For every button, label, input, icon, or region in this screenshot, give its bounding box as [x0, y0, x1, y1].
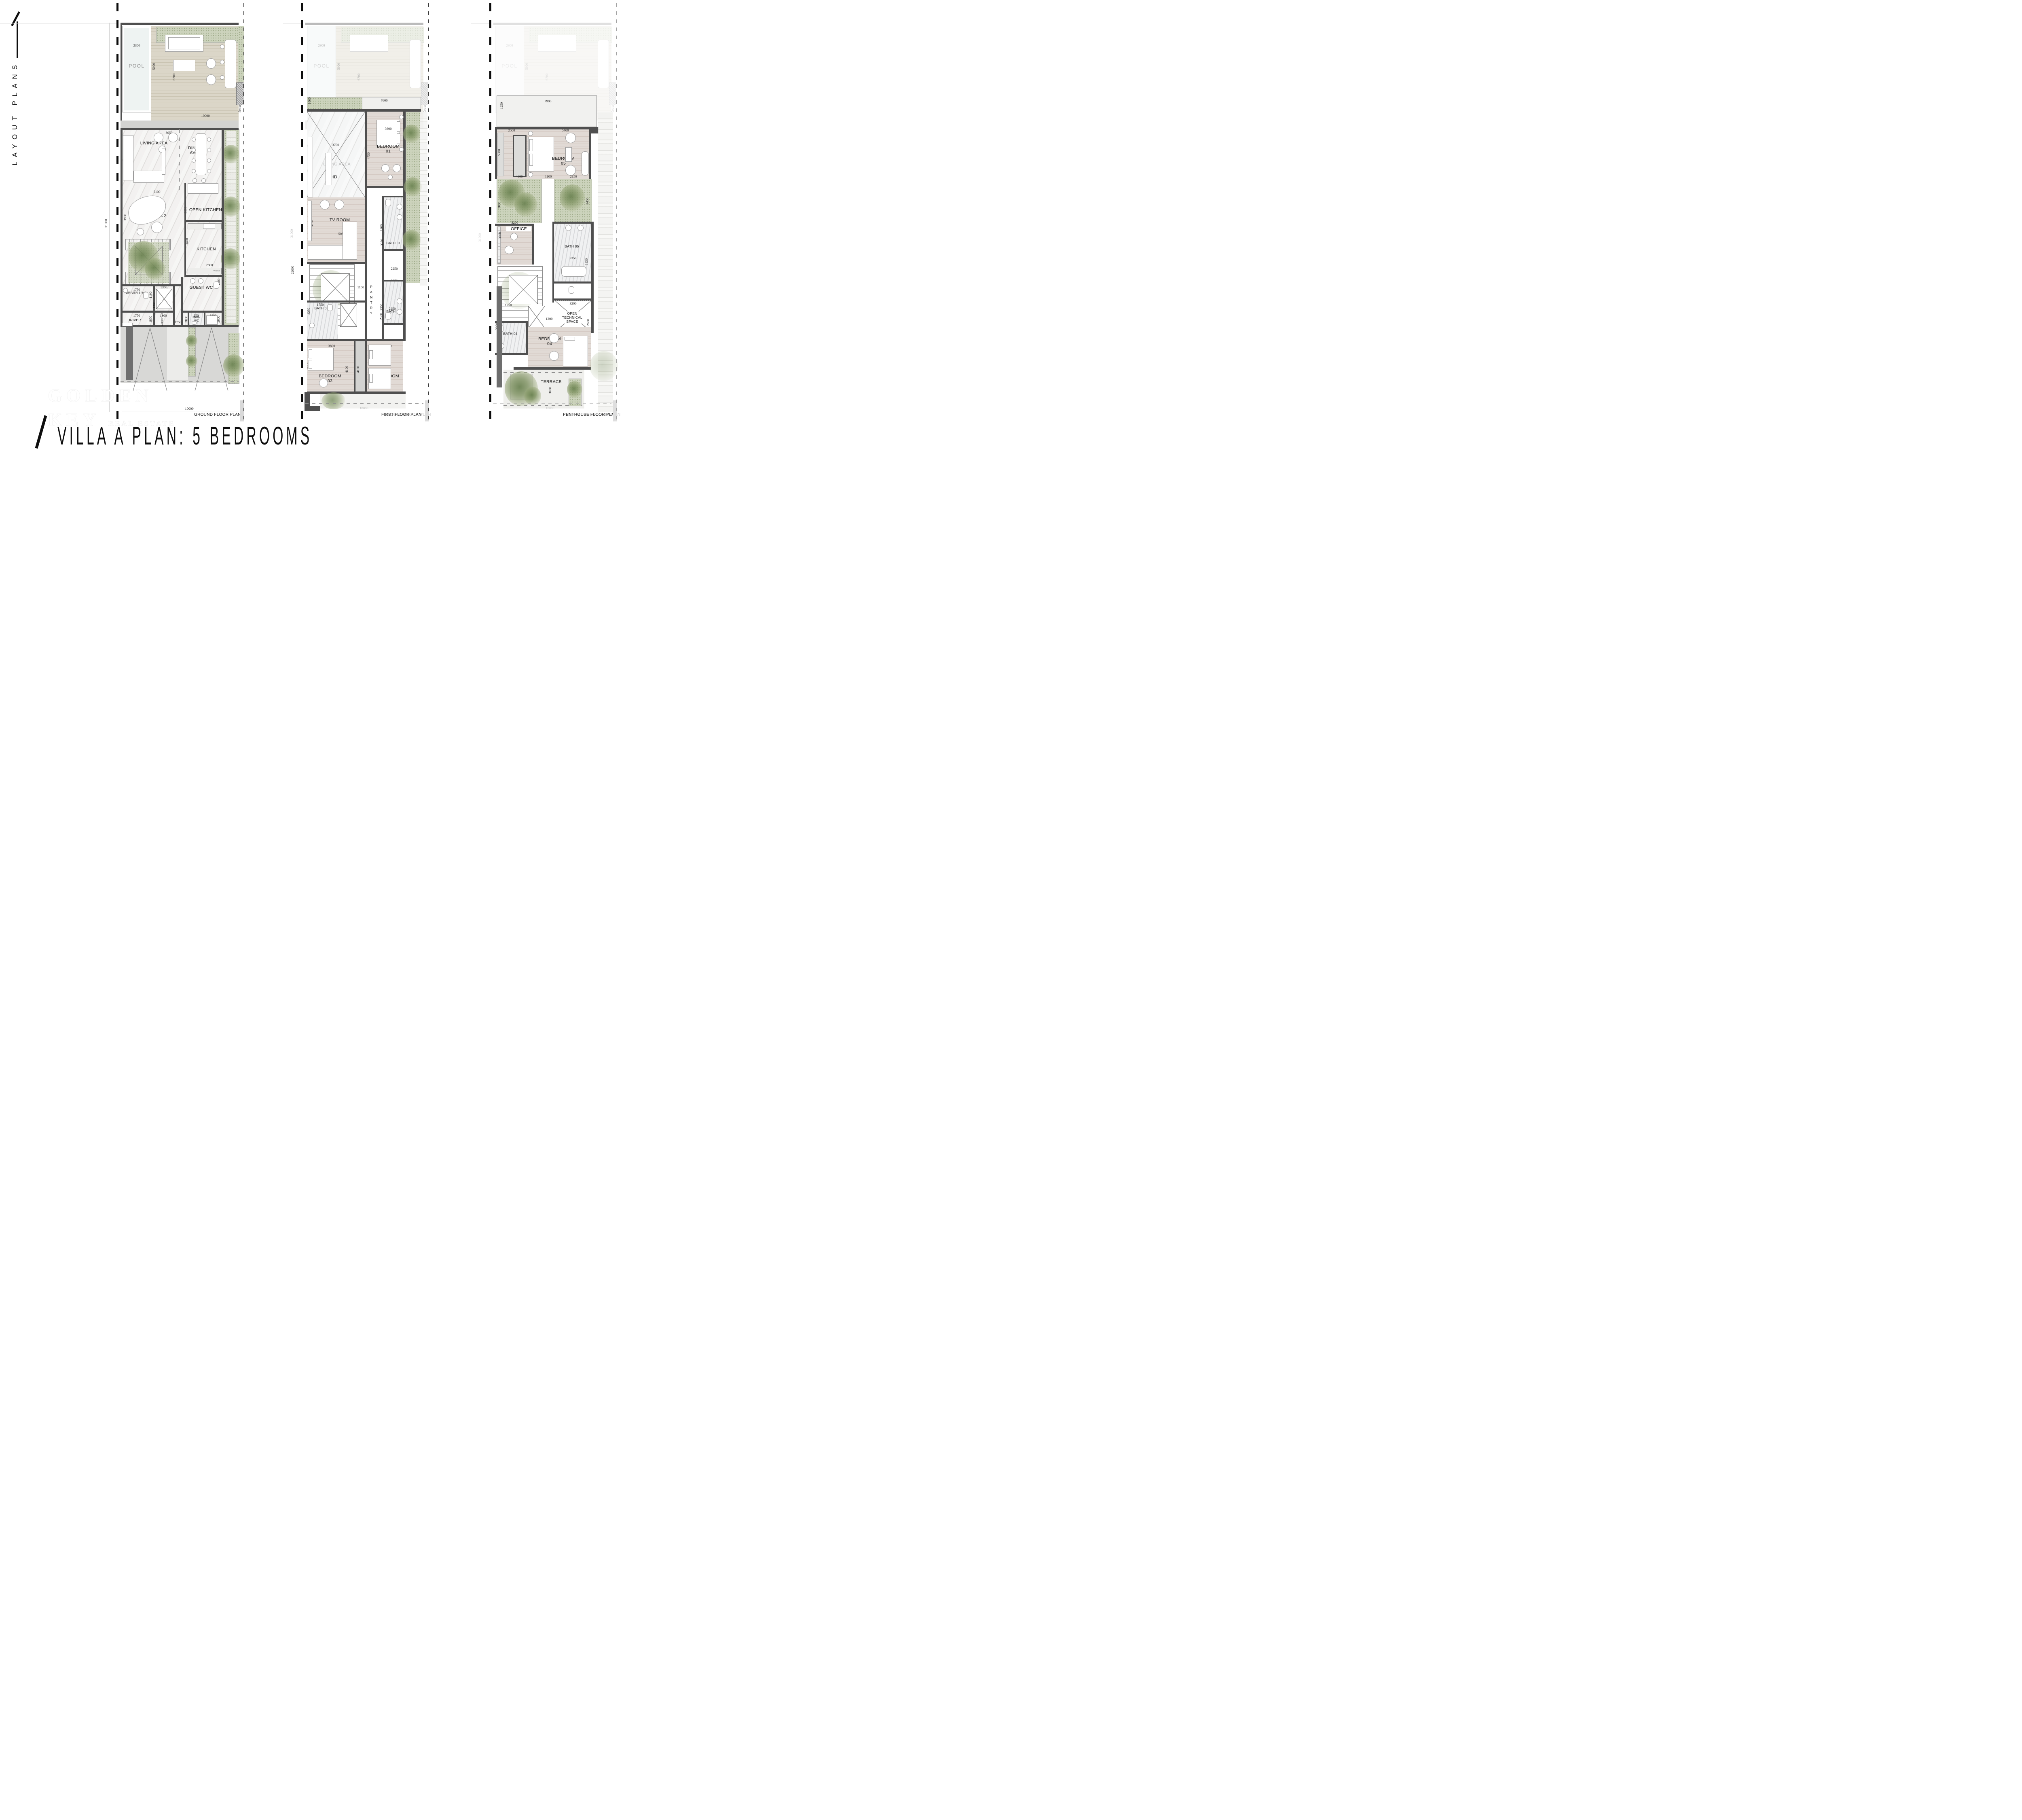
bath3-sink — [309, 323, 315, 328]
living-chaise — [133, 171, 164, 183]
dim-deck-width: 10000 — [189, 114, 222, 118]
pool — [122, 26, 151, 112]
deck-dining-chair — [220, 75, 224, 80]
plot-boundary-left — [301, 3, 303, 423]
bed2-pillow — [369, 350, 373, 359]
dim-driver-width: 1750 — [125, 314, 148, 317]
living-armchair — [168, 133, 178, 142]
office-right-wall — [532, 224, 534, 265]
dim-planter2-width: 2150 — [562, 175, 585, 178]
bath2-toilet — [385, 312, 391, 320]
side-slash-icon — [11, 11, 20, 26]
office-floor — [497, 226, 532, 265]
dim-bed3-width: 3800 — [319, 344, 344, 348]
dim-pool-width: 2300 — [126, 44, 147, 47]
room-label-bed1: BEDROOM 01 — [376, 144, 401, 154]
office-guest-chair — [505, 246, 514, 254]
dining-chair — [207, 138, 211, 142]
dining-chair — [192, 169, 196, 173]
bed2-left-wall — [365, 341, 367, 392]
dim-terrace-width: 7600 — [362, 99, 406, 102]
corridor-wall — [181, 277, 183, 327]
watermark-line1: GOLDEN — [48, 383, 175, 408]
bed3-right-wall — [354, 341, 355, 392]
bath5-divider — [552, 281, 594, 284]
setback-dash-line — [493, 403, 611, 404]
plot-boundary-right — [243, 3, 244, 423]
room-label-living-ghost: LIVING AREA — [317, 162, 357, 167]
room-label-pool: POOL — [125, 63, 149, 69]
planter-tree — [222, 145, 239, 163]
bath2-sink — [397, 298, 402, 304]
leader-line — [283, 23, 301, 23]
dim-planter-depth: 2000 — [497, 197, 501, 213]
room-label-bbq: BBQ — [238, 105, 241, 113]
dim-driver-wc-depth: 1100 — [149, 287, 152, 303]
void-dash-line — [179, 129, 180, 193]
dim-planter-depth: 1000 — [308, 93, 311, 109]
dim-living2-width: 5100 — [139, 190, 175, 194]
dim-maid-wc-width: 950 — [189, 314, 203, 317]
deck-dining-table — [225, 40, 236, 88]
leader-line — [0, 23, 116, 23]
room-label-tech: OPEN TECHNICAL SPACE — [560, 311, 585, 324]
bed5-table — [565, 147, 572, 162]
bed1-nightstand — [399, 115, 404, 119]
dining-chair — [207, 169, 211, 173]
right-planter-tree — [403, 125, 420, 143]
bbq-counter — [236, 83, 243, 105]
dim-deck-depth: 6700 — [172, 69, 176, 85]
plot-boundary-left — [116, 3, 118, 423]
side-divider-line — [17, 21, 18, 58]
void-cross — [307, 112, 365, 197]
bed3-pillow — [309, 360, 312, 369]
dim-driver-wc-width: 1750 — [125, 288, 148, 292]
bed1-chair — [381, 164, 389, 172]
bed5-right-wall — [589, 129, 591, 179]
tv-sofa-l2 — [343, 222, 357, 260]
bed5-sofa — [582, 151, 589, 176]
office-chair — [510, 233, 518, 240]
maid-wc-toilet — [192, 321, 197, 325]
room-label-driver: DRIVER — [123, 318, 146, 322]
room-label-living: LIVING AREA — [135, 141, 173, 146]
plot-boundary-right — [428, 3, 429, 423]
bath1-toilet — [385, 199, 391, 206]
dim-void-width: 3700 — [319, 143, 352, 147]
driver-bed — [122, 323, 133, 326]
guest-wc-sink — [198, 278, 203, 284]
dim-bed2-length: 4100 — [356, 361, 360, 377]
guest-wc-toilet — [214, 281, 219, 289]
kitchen-stove — [203, 224, 215, 229]
courtyard-tree — [145, 258, 165, 280]
room-label-bath5: BATH 05 — [560, 244, 583, 248]
room-label-bath4: BATH 04 — [499, 332, 522, 336]
dim-gap: 1100 — [540, 175, 556, 178]
dining-chair — [192, 148, 196, 152]
house-right-wall — [222, 128, 224, 326]
dim-tech-width: 3200 — [561, 302, 585, 305]
dim-office-width: 3200 — [502, 221, 527, 224]
dim-office-depth: 3000 — [498, 227, 502, 243]
bath5-toilet — [569, 286, 574, 294]
void-sofa-ghost — [308, 137, 313, 197]
dim-planter-width: 4600 — [506, 175, 532, 178]
dim-bath1-width: 2250 — [384, 267, 404, 271]
bath2-bottom-wall — [382, 323, 406, 325]
guest-wc-sink — [190, 278, 195, 284]
deck-chair — [206, 58, 216, 69]
first-floor-plan: 31000 22000 POOL 2300 5000 6700 10000 BB… — [301, 3, 431, 425]
dim-pool-length: 5000 — [152, 58, 156, 74]
room-label-guest-wc: GUEST WC — [186, 285, 216, 290]
bath5-sink — [577, 225, 584, 231]
bed5-wardrobe — [513, 135, 527, 177]
dim-living2-depth: 3900 — [123, 209, 127, 225]
ground-floor-plan: 31000 POOL 2300 5000 BBQ 6700 10000 8050… — [116, 3, 247, 425]
dim-driver-depth: 1850 — [149, 311, 152, 327]
planter-left-tree — [514, 193, 537, 217]
bed1-table — [388, 175, 393, 180]
driver-room-wall — [121, 311, 175, 313]
room-label-bath1: BATH 01 — [384, 241, 403, 245]
dining-chair — [207, 159, 211, 163]
bed4-chair — [549, 351, 559, 361]
room-label-office: OFFICE — [506, 226, 531, 231]
bath1-top-wall — [382, 196, 406, 197]
bath1-sink — [397, 204, 402, 210]
dim-bed5-depth: 5000 — [497, 144, 501, 161]
bath5-sink — [565, 225, 571, 231]
kitchen-divider-wall — [184, 183, 186, 277]
bath1-bottom-wall — [382, 249, 406, 251]
deck-coffee-table — [173, 60, 195, 71]
bed4-chair — [549, 333, 559, 343]
kitchen-island — [188, 183, 218, 194]
dim-planter2-depth: 3450 — [586, 193, 589, 209]
room-label-open-kitchen: OPEN KITCHEN — [188, 207, 223, 212]
planter-right-tree — [560, 184, 585, 211]
bath5-top-wall — [552, 222, 594, 224]
bed5-pillow — [529, 139, 533, 151]
tv-chair — [334, 200, 344, 210]
void-table-ghost — [326, 153, 332, 185]
dim-ghost-site-width: 10000 — [534, 406, 566, 410]
deck-sofa-cushion — [168, 37, 200, 49]
planter-tree — [222, 197, 240, 217]
dim-bed3-length: 4100 — [345, 361, 349, 377]
side-label: LAYOUT PLANS — [11, 61, 19, 165]
plan-footer-label: FIRST FLOOR PLAN — [381, 413, 422, 417]
dim-ghost-site-length: 31000 — [478, 229, 482, 245]
living-sofa — [123, 135, 133, 180]
plan-footer-label: PENTHOUSE FLOOR PLAN — [563, 413, 617, 417]
dining-chair — [192, 159, 196, 163]
leader-line — [471, 23, 489, 23]
bed5-pillow — [529, 154, 533, 166]
lift-shaft — [340, 303, 357, 327]
open-kitchen-wall — [184, 220, 222, 222]
dim-bed1-depth: 4750 — [367, 148, 370, 164]
dim-hall2-width: 2250 — [382, 307, 402, 311]
dim-kitchen-width: 2800 — [197, 263, 222, 267]
plot-boundary-right — [616, 3, 617, 423]
right-planter-tree — [404, 177, 422, 197]
plot-boundary-left — [489, 3, 491, 423]
tv-unit — [308, 201, 312, 241]
bed1-bottom-wall — [365, 186, 406, 188]
bed3-chair — [319, 379, 328, 387]
dining-table — [196, 133, 206, 175]
pouf — [137, 228, 144, 235]
round-table — [151, 222, 163, 233]
pent-left-thick-wall — [497, 286, 502, 387]
dim-level-length: 22000 — [291, 262, 294, 278]
kitchen-bottom-wall — [184, 275, 222, 277]
lift-shaft — [528, 306, 545, 328]
title-slash-icon — [35, 415, 47, 449]
dim-site-length: 31000 — [104, 215, 108, 231]
room-label-bed5: BEDROOM 05 — [550, 156, 577, 166]
bath5-tub — [561, 266, 586, 277]
bed2-pillow — [369, 374, 373, 383]
entry-step-b — [305, 406, 320, 411]
living-armchair — [154, 133, 163, 142]
bed3-pillow — [309, 349, 312, 358]
dim-bath5-width: 3350 — [561, 256, 585, 260]
mid-wall — [365, 112, 367, 339]
lift-shaft — [156, 289, 172, 309]
deck-top-wall — [121, 23, 239, 25]
setback-dash-line — [305, 403, 423, 404]
stair-shaft — [509, 275, 538, 304]
terrace-planter-tree — [567, 381, 582, 398]
dim-hall2-depth: 2300 — [379, 308, 383, 324]
bath3-toilet — [327, 304, 333, 311]
bed5-armchair — [565, 133, 576, 143]
bath1-sink — [397, 214, 402, 220]
setback-dash-line — [121, 381, 239, 382]
extension-line — [295, 23, 295, 412]
bath5-left-wall — [552, 222, 554, 303]
right-walkway — [420, 112, 427, 286]
front-planter — [307, 97, 363, 110]
tv-console — [162, 148, 165, 175]
courtyard-bottom-wall — [121, 284, 181, 286]
room-label-pantry: PANTRY — [369, 282, 373, 319]
dim-lift-width: 1300 — [156, 286, 171, 289]
penthouse-floor-plan: 31000 POOL 2300 5000 6700 10000 BBQ 7900… — [489, 3, 620, 425]
page-title: VILLA A PLAN: 5 BEDROOMS — [57, 421, 312, 451]
plan-footer-label: GROUND FLOOR PLAN — [194, 413, 241, 417]
dining-chair — [207, 148, 211, 152]
dim-laundry-width: 1300 — [155, 314, 171, 317]
island-stool — [192, 178, 197, 183]
extension-line — [109, 23, 110, 412]
deck-chair — [206, 74, 216, 85]
dim-bed1-width: 3600 — [376, 127, 400, 131]
fridge-label: FRIDGE — [211, 270, 222, 272]
extension-line — [483, 23, 483, 412]
stair-shaft — [321, 273, 350, 303]
dim-terrace-depth: 1250 — [500, 97, 503, 114]
dim-terrace2-depth: 3000 — [548, 382, 552, 398]
dim-bath1-depth: 3350 — [380, 234, 384, 250]
bath2-top-wall — [382, 280, 406, 281]
maid-bed — [206, 315, 218, 325]
house-left-wall — [121, 128, 123, 327]
dim-bed5-width: 5400 — [550, 129, 581, 132]
dim-kitchen-depth: 3400 — [185, 233, 189, 250]
garage-car-chevrons-icon — [121, 327, 239, 392]
bed4-pillow — [565, 337, 575, 341]
dim-ghost-site-width: 10000 — [348, 406, 380, 410]
tv-chair — [320, 200, 330, 210]
dim-bath3-depth: 3250 — [307, 303, 311, 319]
driver-wc-toilet — [143, 292, 148, 299]
dim-bed5-a: 2500 — [501, 129, 522, 132]
lower-terrace-plants — [321, 392, 346, 409]
bed1-chair — [393, 164, 401, 172]
bed1-pillow — [397, 133, 400, 144]
bath5-right-wall — [591, 222, 594, 333]
deck-dining-chair — [220, 60, 224, 64]
dim-maid-wc-depth: 2000 — [184, 311, 188, 327]
right-planter-tree — [402, 230, 421, 250]
dim-ghost-site-length: 31000 — [290, 225, 294, 241]
island-stool — [201, 178, 206, 183]
deck-dining-chair — [220, 44, 224, 49]
dim-terrace-width: 7900 — [530, 99, 566, 103]
bed5-nightstand — [528, 131, 533, 136]
room-label-kitchen: KITCHEN — [194, 247, 218, 252]
driver-wc-sink — [123, 288, 128, 293]
dining-chair — [192, 138, 196, 142]
right-ghost-tree — [590, 351, 618, 381]
bed5-left-wall — [495, 129, 497, 179]
